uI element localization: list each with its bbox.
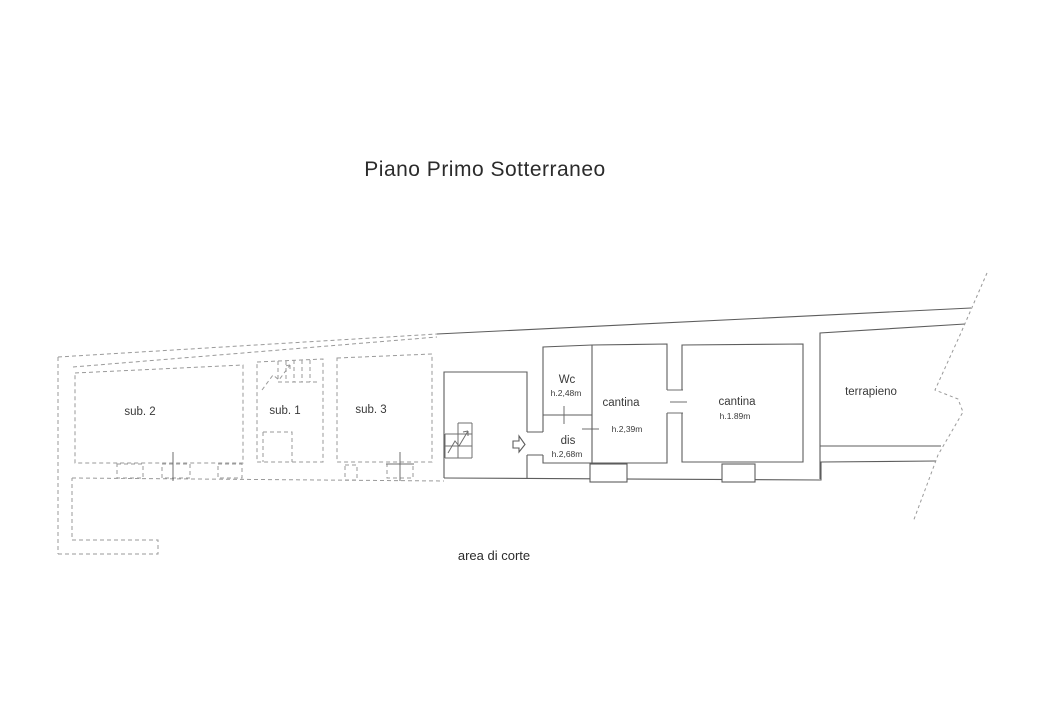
entrance-arrow-icon (513, 436, 525, 452)
room-sub-3: sub. 3 (337, 354, 432, 462)
room-wc: Wc h.2,48m (543, 345, 592, 424)
room-label: cantina (718, 396, 756, 408)
room-sub-2: sub. 2 (75, 365, 243, 463)
wall-opening (117, 464, 143, 478)
area-terrapieno: terrapieno (820, 324, 965, 479)
room-label: sub. 3 (355, 404, 386, 416)
boundary-top-line (58, 334, 437, 357)
plan-title: Piano Primo Sotterraneo (364, 158, 605, 181)
stairwell-hall (444, 372, 543, 478)
wall-opening (345, 465, 357, 480)
room-label: Wc (559, 374, 576, 386)
entry-passage-walls (527, 432, 543, 455)
room-height-label: h.2,68m (552, 449, 583, 459)
buttress (722, 464, 755, 482)
room-cantina-2: cantina h.1.89m (682, 344, 803, 462)
room-label: dis (561, 435, 576, 447)
room-label: sub. 2 (124, 406, 155, 418)
room-dis: dis h.2,68m (543, 415, 599, 463)
room-label: terrapieno (845, 386, 897, 398)
courtyard-label: area di corte (458, 548, 530, 563)
room-height-label: h.1.89m (720, 411, 751, 421)
terrapieno-walls (820, 324, 965, 479)
stairs-icon (445, 423, 472, 458)
stairwell-walls (444, 372, 527, 478)
room-sub-2-walls (75, 365, 243, 463)
room-sub-1: sub. 1 (257, 359, 323, 462)
wall-opening (218, 464, 242, 478)
floor-plan-canvas: Piano Primo Sotterraneo sub. 2 (0, 0, 1039, 707)
wall-opening (162, 464, 190, 478)
floor-plan-page: Piano Primo Sotterraneo sub. 2 (0, 0, 1039, 707)
room-label: sub. 1 (269, 405, 300, 417)
outer-wall-bottom-line (444, 461, 936, 480)
room-height-label: h.2,48m (551, 388, 582, 398)
courtyard-boundary (58, 478, 158, 554)
doorway-between-cantinas (667, 390, 687, 413)
room-label: cantina (602, 397, 640, 409)
room-height-label: h.2,39m (612, 424, 643, 434)
outer-wall-top-line (437, 308, 971, 334)
room-cantina-1: cantina h.2,39m (592, 344, 667, 463)
buttress (590, 464, 627, 482)
